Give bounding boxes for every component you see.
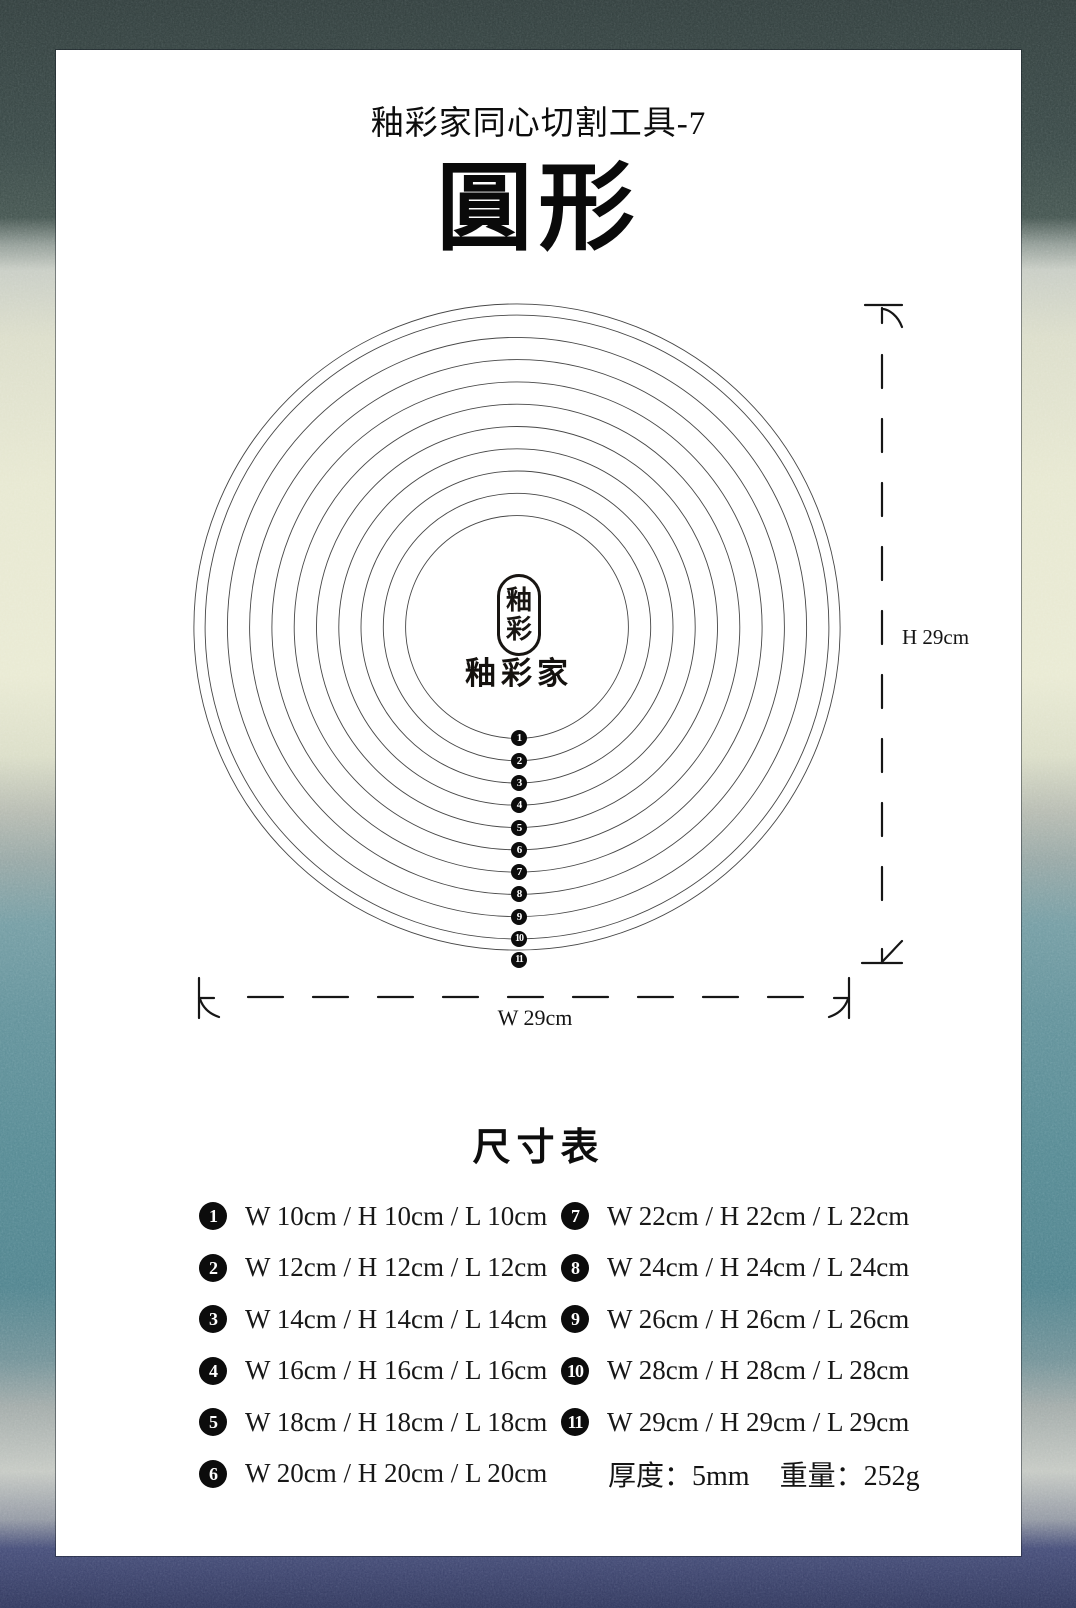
- circle-marker-badge: 9: [511, 909, 527, 925]
- circle-marker-badge: 7: [511, 864, 527, 880]
- spec-card: 釉彩家同心切割工具-7 圓形: [56, 50, 1021, 1556]
- row-number-badge: 10: [561, 1357, 589, 1385]
- size-table-left-column: 1W 10cm / H 10cm / L 10cm2W 12cm / H 12c…: [199, 1196, 589, 1505]
- row-number-badge: 2: [199, 1254, 227, 1282]
- product-title: 圓形: [56, 154, 1021, 264]
- table-row: 7W 22cm / H 22cm / L 22cm: [561, 1196, 961, 1236]
- circle-marker-badge: 1: [511, 730, 527, 746]
- circle-marker-badge: 8: [511, 886, 527, 902]
- brand-calligraphy: 釉彩家: [419, 654, 619, 694]
- circle-marker-badge: 10: [511, 931, 527, 947]
- row-number-badge: 7: [561, 1202, 589, 1230]
- size-table-right-column: 7W 22cm / H 22cm / L 22cm8W 24cm / H 24c…: [561, 1196, 961, 1494]
- circle-marker-badge: 5: [511, 820, 527, 836]
- width-dimension-label: W 29cm: [435, 1005, 635, 1031]
- row-number-badge: 1: [199, 1202, 227, 1230]
- row-number-badge: 6: [199, 1460, 227, 1488]
- circle-marker-badge: 6: [511, 842, 527, 858]
- thickness-label: 厚度：5mm: [608, 1454, 750, 1494]
- size-table-title: 尺寸表: [56, 1126, 1021, 1170]
- row-size-label: W 14cm / H 14cm / L 14cm: [245, 1304, 547, 1335]
- table-row: 9W 26cm / H 26cm / L 26cm: [561, 1299, 961, 1339]
- table-row: 2W 12cm / H 12cm / L 12cm: [199, 1248, 589, 1288]
- table-row: 10W 28cm / H 28cm / L 28cm: [561, 1351, 961, 1391]
- circle-marker-badge: 3: [511, 775, 527, 791]
- height-dimension-line: [862, 305, 902, 963]
- row-number-badge: 11: [561, 1408, 589, 1436]
- row-size-label: W 16cm / H 16cm / L 16cm: [245, 1355, 547, 1386]
- table-row: 4W 16cm / H 16cm / L 16cm: [199, 1351, 589, 1391]
- table-row: 3W 14cm / H 14cm / L 14cm: [199, 1299, 589, 1339]
- table-row: 5W 18cm / H 18cm / L 18cm: [199, 1402, 589, 1442]
- seal-char-top: 釉: [506, 587, 532, 615]
- weight-label: 重量：252g: [780, 1454, 920, 1494]
- row-number-badge: 3: [199, 1305, 227, 1333]
- row-size-label: W 12cm / H 12cm / L 12cm: [245, 1252, 547, 1283]
- height-dimension-label: H 29cm: [902, 624, 969, 650]
- circle-marker-badge: 2: [511, 753, 527, 769]
- table-row: 6W 20cm / H 20cm / L 20cm: [199, 1454, 589, 1494]
- row-number-badge: 9: [561, 1305, 589, 1333]
- spec-sheet-page: 釉彩家同心切割工具-7 圓形: [0, 0, 1076, 1608]
- circle-marker-badge: 11: [511, 952, 527, 968]
- specs-row: 厚度：5mm重量：252g: [608, 1454, 961, 1494]
- row-size-label: W 28cm / H 28cm / L 28cm: [607, 1355, 909, 1386]
- row-size-label: W 29cm / H 29cm / L 29cm: [607, 1407, 909, 1438]
- row-size-label: W 22cm / H 22cm / L 22cm: [607, 1201, 909, 1232]
- table-row: 1W 10cm / H 10cm / L 10cm: [199, 1196, 589, 1236]
- circle-marker-badge: 4: [511, 797, 527, 813]
- brand-seal-logo: 釉 彩: [497, 574, 541, 656]
- row-size-label: W 24cm / H 24cm / L 24cm: [607, 1252, 909, 1283]
- seal-char-bottom: 彩: [506, 616, 532, 644]
- row-size-label: W 10cm / H 10cm / L 10cm: [245, 1201, 547, 1232]
- row-size-label: W 26cm / H 26cm / L 26cm: [607, 1304, 909, 1335]
- row-number-badge: 4: [199, 1357, 227, 1385]
- row-number-badge: 5: [199, 1408, 227, 1436]
- row-size-label: W 20cm / H 20cm / L 20cm: [245, 1458, 547, 1489]
- table-row: 8W 24cm / H 24cm / L 24cm: [561, 1248, 961, 1288]
- table-row: 11W 29cm / H 29cm / L 29cm: [561, 1402, 961, 1442]
- product-subtitle: 釉彩家同心切割工具-7: [56, 106, 1021, 142]
- row-size-label: W 18cm / H 18cm / L 18cm: [245, 1407, 547, 1438]
- row-number-badge: 8: [561, 1254, 589, 1282]
